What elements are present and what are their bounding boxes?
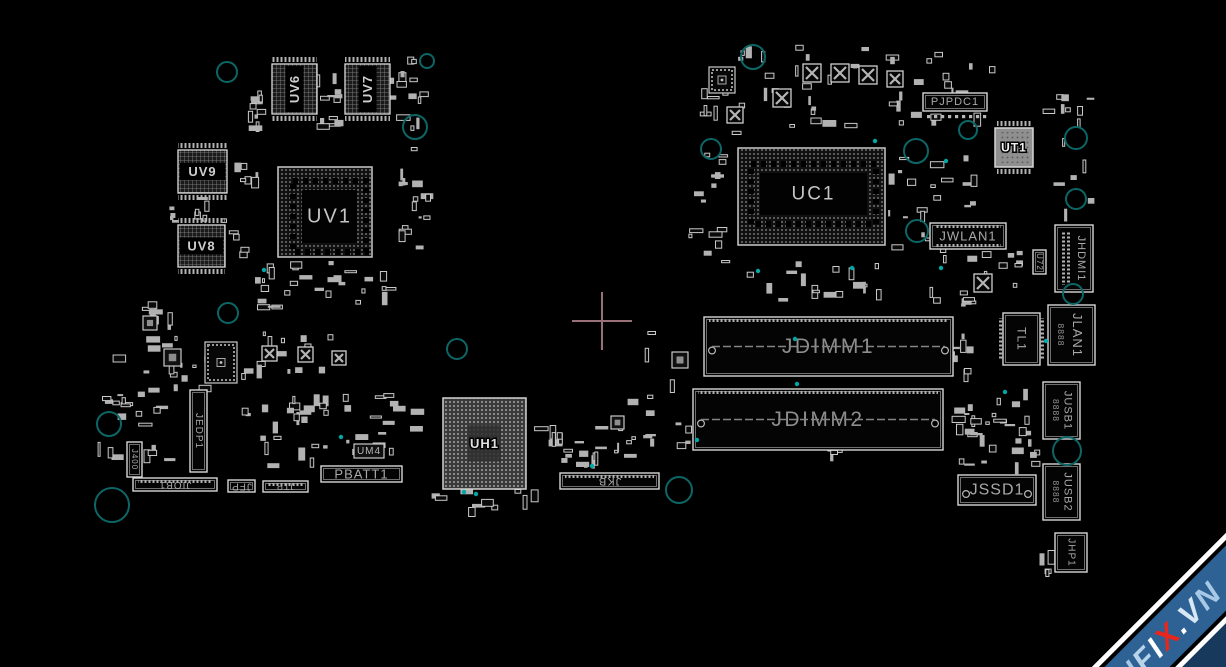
passive-part bbox=[234, 234, 240, 240]
passive-part bbox=[413, 197, 418, 201]
passive-part bbox=[965, 429, 975, 435]
passive-part bbox=[764, 88, 767, 101]
passive-part bbox=[1046, 570, 1049, 577]
connector-layer: PJPDC1JWLAN1U72JHDMI1TL18888JLAN1JDIMM1J… bbox=[127, 93, 1095, 572]
test-point bbox=[590, 464, 594, 468]
small-ic-x[interactable] bbox=[773, 89, 791, 107]
small-ic-x[interactable] bbox=[887, 71, 903, 87]
passive-part bbox=[324, 410, 328, 415]
passive-part bbox=[148, 302, 157, 309]
passive-part bbox=[690, 229, 703, 233]
passive-part bbox=[403, 182, 408, 185]
component-UM4[interactable]: UM4 bbox=[354, 444, 384, 458]
passive-part bbox=[845, 123, 857, 127]
passive-part bbox=[579, 451, 588, 457]
test-point bbox=[793, 337, 797, 341]
svg-text:PJPDC1: PJPDC1 bbox=[931, 96, 979, 108]
passive-part bbox=[997, 398, 1000, 405]
passive-part bbox=[968, 404, 973, 411]
passive-part bbox=[999, 263, 1007, 269]
passive-part bbox=[384, 394, 394, 398]
passive-part bbox=[650, 439, 654, 447]
passive-part bbox=[122, 398, 125, 404]
svg-text:UT1: UT1 bbox=[1001, 141, 1027, 155]
svg-text:UM4: UM4 bbox=[357, 446, 381, 457]
mounting-hole bbox=[97, 412, 121, 436]
passive-part bbox=[628, 399, 639, 405]
passive-part bbox=[383, 421, 395, 425]
test-point bbox=[795, 382, 799, 386]
test-point bbox=[339, 435, 343, 439]
passive-part bbox=[889, 102, 897, 106]
passive-part bbox=[148, 388, 159, 393]
passive-part bbox=[830, 454, 833, 461]
passive-part bbox=[971, 419, 982, 425]
passive-part bbox=[117, 394, 123, 396]
passive-part bbox=[103, 397, 111, 401]
passive-part bbox=[328, 335, 333, 340]
passive-part bbox=[719, 155, 728, 157]
passive-part bbox=[677, 443, 686, 449]
connector-JUSB2[interactable]: 8888JUSB2 bbox=[1043, 464, 1080, 520]
passive-part bbox=[265, 442, 268, 454]
small-ic-x[interactable] bbox=[332, 351, 346, 365]
passive-part bbox=[255, 277, 261, 284]
passive-part bbox=[746, 46, 752, 58]
small-ic-x[interactable] bbox=[262, 346, 277, 361]
passive-part bbox=[320, 403, 327, 409]
passive-part bbox=[645, 348, 648, 362]
passive-part bbox=[931, 185, 936, 188]
passive-part bbox=[175, 336, 177, 340]
passive-part bbox=[411, 148, 417, 151]
small-ic-qfn[interactable] bbox=[164, 349, 181, 366]
svg-text:TL1: TL1 bbox=[1015, 327, 1029, 351]
passive-part bbox=[1013, 283, 1017, 287]
passive-part bbox=[811, 107, 816, 111]
passive-part bbox=[796, 66, 798, 76]
passive-part bbox=[148, 450, 156, 455]
passive-part bbox=[382, 287, 386, 291]
mounting-hole bbox=[959, 121, 977, 139]
passive-part bbox=[260, 436, 266, 441]
passive-part bbox=[1012, 448, 1024, 455]
passive-part bbox=[356, 300, 361, 304]
mounting-hole bbox=[906, 220, 928, 242]
connector-JIOB1[interactable]: JIOB1 bbox=[133, 478, 217, 491]
passive-part bbox=[344, 405, 351, 412]
passive-part bbox=[108, 448, 113, 458]
connector-JUSB1[interactable]: 8888JUSB1 bbox=[1043, 382, 1080, 439]
test-point bbox=[873, 139, 877, 143]
passive-part bbox=[967, 346, 974, 353]
passive-part bbox=[934, 298, 941, 304]
passive-part bbox=[205, 201, 209, 211]
passive-part bbox=[1015, 462, 1019, 474]
passive-part bbox=[964, 205, 971, 207]
passive-part bbox=[801, 273, 806, 286]
passive-part bbox=[287, 408, 294, 414]
small-ic-qfn[interactable] bbox=[611, 416, 624, 429]
passive-part bbox=[229, 231, 238, 234]
passive-part bbox=[248, 111, 252, 122]
passive-part bbox=[803, 84, 812, 89]
passive-part bbox=[136, 411, 142, 416]
connector-JKB[interactable]: JKB bbox=[560, 473, 659, 489]
component-UV7[interactable]: UV7 bbox=[345, 57, 390, 121]
passive-part bbox=[1015, 264, 1022, 267]
passive-part bbox=[689, 234, 692, 238]
passive-components-layer bbox=[98, 45, 1094, 576]
passive-part bbox=[796, 261, 802, 267]
small-ic-x[interactable] bbox=[831, 64, 849, 82]
connector-JHP1[interactable]: JHP1 bbox=[1055, 533, 1087, 572]
svg-text:8888: 8888 bbox=[1056, 324, 1066, 347]
connector-TL1[interactable]: TL1 bbox=[999, 313, 1044, 365]
passive-part bbox=[790, 125, 795, 128]
passive-part bbox=[898, 170, 902, 173]
passive-part bbox=[169, 207, 174, 211]
passive-part bbox=[412, 59, 417, 63]
passive-part bbox=[765, 73, 774, 78]
connector-JHDMI1[interactable]: JHDMI1 bbox=[1055, 225, 1093, 292]
passive-part bbox=[531, 490, 538, 502]
passive-part bbox=[861, 47, 869, 51]
passive-part bbox=[345, 271, 357, 273]
passive-part bbox=[273, 422, 278, 434]
passive-part bbox=[964, 369, 971, 374]
passive-part bbox=[261, 285, 268, 291]
passive-part bbox=[708, 97, 720, 99]
passive-part bbox=[257, 365, 262, 379]
passive-part bbox=[399, 182, 403, 187]
passive-part bbox=[298, 448, 305, 461]
passive-part bbox=[646, 410, 655, 416]
svg-text:J400: J400 bbox=[130, 449, 139, 470]
passive-part bbox=[482, 499, 494, 506]
component-UH1[interactable]: UH1 bbox=[443, 398, 526, 489]
passive-part bbox=[1030, 452, 1037, 458]
passive-part bbox=[382, 292, 388, 305]
passive-part bbox=[329, 261, 334, 265]
passive-part bbox=[899, 121, 903, 125]
passive-part bbox=[931, 120, 936, 126]
passive-part bbox=[565, 454, 572, 458]
passive-part bbox=[380, 272, 386, 282]
svg-text:JUSB1: JUSB1 bbox=[1062, 391, 1074, 430]
passive-part bbox=[355, 434, 368, 440]
passive-part bbox=[822, 120, 836, 127]
passive-part bbox=[535, 427, 549, 431]
small-ic-x[interactable] bbox=[974, 274, 992, 292]
passive-part bbox=[412, 181, 423, 188]
svg-text:JFP: JFP bbox=[231, 481, 252, 492]
passive-part bbox=[1043, 109, 1055, 113]
test-point bbox=[756, 269, 760, 273]
passive-part bbox=[808, 96, 811, 105]
passive-part bbox=[709, 232, 722, 237]
passive-part bbox=[964, 413, 969, 415]
svg-text:UV1: UV1 bbox=[307, 206, 352, 228]
passive-part bbox=[515, 490, 521, 494]
passive-part bbox=[836, 292, 843, 298]
passive-part bbox=[704, 251, 712, 256]
passive-part bbox=[964, 464, 975, 466]
passive-part bbox=[595, 447, 607, 450]
connector-JWLAN1[interactable]: JWLAN1 bbox=[930, 223, 1006, 249]
component-UV1[interactable]: UV1 bbox=[278, 167, 372, 257]
passive-part bbox=[334, 120, 343, 126]
small-ic-x[interactable] bbox=[803, 64, 821, 82]
passive-part bbox=[315, 288, 324, 291]
passive-part bbox=[994, 419, 1007, 422]
passive-part bbox=[704, 106, 707, 116]
connector-PBATT1[interactable]: PBATT1 bbox=[321, 466, 402, 482]
passive-part bbox=[274, 436, 281, 439]
passive-part bbox=[262, 405, 268, 413]
passive-part bbox=[561, 458, 567, 463]
passive-part bbox=[290, 281, 297, 285]
passive-part bbox=[408, 93, 416, 99]
passive-part bbox=[252, 177, 259, 188]
passive-part bbox=[702, 89, 708, 99]
passive-part bbox=[967, 256, 977, 262]
connector-JEDP1[interactable]: JEDP1 bbox=[190, 390, 207, 472]
passive-part bbox=[595, 426, 608, 430]
passive-part bbox=[1019, 428, 1026, 436]
test-point bbox=[474, 492, 478, 496]
passive-part bbox=[276, 351, 287, 356]
passive-part bbox=[424, 216, 430, 220]
passive-part bbox=[293, 396, 295, 403]
mounting-hole bbox=[904, 139, 928, 163]
small-ic-qfp[interactable] bbox=[205, 342, 237, 383]
passive-part bbox=[263, 332, 265, 336]
passive-part bbox=[552, 433, 555, 447]
svg-text:JSSD1: JSSD1 bbox=[970, 482, 1025, 499]
mounting-hole bbox=[420, 54, 434, 68]
passive-part bbox=[595, 452, 598, 465]
connector-J400[interactable]: J400 bbox=[127, 442, 142, 477]
passive-part bbox=[419, 216, 422, 218]
passive-part bbox=[686, 426, 692, 433]
test-point bbox=[1003, 390, 1007, 394]
mounting-hole bbox=[1053, 437, 1081, 465]
passive-part bbox=[149, 309, 163, 314]
passive-part bbox=[1087, 98, 1095, 100]
passive-part bbox=[903, 216, 908, 218]
crosshair-layer bbox=[572, 292, 632, 350]
passive-part bbox=[241, 247, 249, 252]
test-point bbox=[262, 268, 266, 272]
passive-part bbox=[982, 252, 991, 258]
passive-part bbox=[1025, 416, 1029, 424]
passive-part bbox=[670, 380, 674, 393]
passive-part bbox=[889, 174, 895, 185]
passive-part bbox=[1048, 551, 1055, 565]
passive-part bbox=[981, 461, 987, 464]
passive-part bbox=[281, 338, 284, 342]
passive-part bbox=[249, 125, 263, 131]
passive-part bbox=[416, 118, 419, 130]
svg-text:UV7: UV7 bbox=[360, 75, 375, 103]
passive-part bbox=[319, 367, 325, 374]
test-point bbox=[944, 159, 948, 163]
passive-part bbox=[416, 246, 424, 250]
passive-part bbox=[694, 191, 704, 196]
svg-text:JHP1: JHP1 bbox=[1066, 538, 1077, 566]
passive-part bbox=[1008, 253, 1014, 258]
passive-part bbox=[168, 313, 172, 325]
passive-part bbox=[393, 406, 406, 412]
component-UT1[interactable]: UT1 bbox=[995, 121, 1033, 174]
passive-part bbox=[113, 401, 119, 405]
passive-part bbox=[944, 256, 947, 263]
passive-part bbox=[1061, 94, 1069, 101]
passive-part bbox=[943, 73, 949, 80]
passive-part bbox=[980, 435, 985, 447]
passive-part bbox=[716, 241, 722, 248]
passive-part bbox=[935, 52, 943, 56]
connector-JSSD1[interactable]: JSSD1 bbox=[958, 475, 1036, 505]
passive-part bbox=[786, 271, 797, 274]
passive-part bbox=[960, 291, 967, 295]
passive-part bbox=[162, 343, 173, 347]
passive-part bbox=[624, 454, 637, 458]
passive-part bbox=[121, 404, 130, 407]
small-ic-qfn[interactable] bbox=[672, 352, 688, 368]
passive-part bbox=[992, 413, 996, 416]
passive-part bbox=[362, 289, 365, 293]
passive-part bbox=[914, 79, 924, 85]
passive-part bbox=[390, 401, 399, 407]
component-UV9[interactable]: UV9 bbox=[178, 143, 227, 200]
component-UV6[interactable]: UV6 bbox=[272, 57, 317, 121]
passive-part bbox=[934, 196, 941, 201]
board-canvas[interactable]: UV6UV7UV9UV8UV1UC1UH1UT1UM4 PJPDC1JWLAN1… bbox=[0, 0, 1226, 667]
test-point bbox=[850, 266, 854, 270]
passive-part bbox=[833, 267, 839, 273]
passive-part bbox=[295, 367, 302, 373]
small-ic-x[interactable] bbox=[859, 66, 877, 84]
passive-part bbox=[168, 326, 172, 330]
passive-part bbox=[722, 261, 730, 263]
passive-part bbox=[796, 45, 803, 50]
small-ic-x[interactable] bbox=[727, 107, 743, 123]
passive-part bbox=[144, 370, 150, 373]
passive-part bbox=[971, 175, 977, 186]
passive-part bbox=[648, 332, 656, 335]
connector-U72[interactable]: U72 bbox=[1033, 250, 1046, 274]
passive-part bbox=[299, 275, 312, 279]
passive-part bbox=[1012, 401, 1020, 407]
passive-part bbox=[557, 433, 562, 440]
connector-JFP[interactable]: JFP bbox=[228, 480, 255, 492]
small-ic-x[interactable] bbox=[298, 347, 313, 362]
component-UV8[interactable]: UV8 bbox=[178, 218, 225, 274]
passive-part bbox=[255, 114, 259, 118]
connector-JDIMM1[interactable]: JDIMM1 bbox=[704, 317, 953, 376]
passive-part bbox=[98, 442, 100, 456]
svg-text:JIOB1: JIOB1 bbox=[159, 479, 192, 490]
passive-part bbox=[164, 458, 175, 461]
passive-part bbox=[811, 118, 821, 124]
small-ic-qfn[interactable] bbox=[143, 316, 157, 330]
passive-part bbox=[343, 394, 348, 401]
passive-part bbox=[778, 298, 788, 302]
small-ic-qfp[interactable] bbox=[709, 67, 735, 93]
svg-text:JHDMI1: JHDMI1 bbox=[1075, 236, 1087, 282]
passive-part bbox=[258, 299, 267, 304]
passive-part bbox=[806, 54, 810, 61]
passive-part bbox=[1054, 182, 1065, 186]
passive-part bbox=[1061, 104, 1065, 114]
svg-text:UV8: UV8 bbox=[187, 239, 215, 254]
passive-part bbox=[676, 422, 682, 425]
passive-part bbox=[959, 459, 964, 464]
passive-part bbox=[813, 290, 819, 292]
passive-part bbox=[732, 131, 741, 134]
passive-part bbox=[257, 109, 266, 114]
passive-part bbox=[747, 272, 753, 277]
passive-part bbox=[890, 57, 895, 64]
passive-part bbox=[170, 213, 175, 218]
mounting-hole bbox=[701, 139, 721, 159]
svg-text:8888: 8888 bbox=[1051, 481, 1061, 504]
connector-JLAN1[interactable]: 8888JLAN1 bbox=[1048, 305, 1095, 365]
passive-part bbox=[195, 209, 199, 215]
passive-part bbox=[1088, 198, 1095, 204]
mounting-hole bbox=[403, 115, 427, 139]
connector-JDIMM2[interactable]: JDIMM2 bbox=[693, 389, 943, 450]
passive-part bbox=[418, 97, 421, 103]
passive-part bbox=[888, 210, 890, 216]
passive-part bbox=[954, 408, 965, 414]
passive-part bbox=[930, 162, 944, 168]
svg-text:U72: U72 bbox=[1035, 253, 1044, 271]
passive-part bbox=[961, 340, 966, 352]
svg-text:UC1: UC1 bbox=[791, 184, 835, 205]
test-point bbox=[939, 266, 943, 270]
passive-part bbox=[719, 160, 726, 165]
passive-part bbox=[921, 232, 925, 237]
boardview-app: UV6UV7UV9UV8UV1UC1UH1UT1UM4 PJPDC1JWLAN1… bbox=[0, 0, 1226, 667]
passive-part bbox=[193, 365, 196, 367]
passive-part bbox=[267, 463, 279, 468]
passive-part bbox=[420, 92, 428, 97]
svg-text:JEDP1: JEDP1 bbox=[193, 413, 204, 449]
passive-part bbox=[1078, 107, 1083, 116]
passive-part bbox=[969, 63, 973, 69]
test-point bbox=[462, 490, 466, 494]
passive-part bbox=[575, 441, 584, 443]
component-UC1[interactable]: UC1 bbox=[738, 148, 885, 245]
passive-part bbox=[711, 183, 716, 188]
passive-part bbox=[317, 124, 329, 130]
passive-part bbox=[627, 441, 632, 444]
passive-part bbox=[645, 434, 656, 436]
passive-part bbox=[986, 422, 990, 425]
passive-part bbox=[875, 264, 878, 269]
passive-part bbox=[301, 335, 307, 342]
passive-part bbox=[892, 245, 903, 250]
passive-part bbox=[632, 437, 636, 440]
connector-JTP[interactable]: JTP bbox=[263, 481, 308, 492]
passive-part bbox=[259, 95, 262, 102]
passive-part bbox=[1015, 438, 1021, 443]
passive-part bbox=[139, 423, 152, 426]
passive-part bbox=[301, 417, 307, 424]
